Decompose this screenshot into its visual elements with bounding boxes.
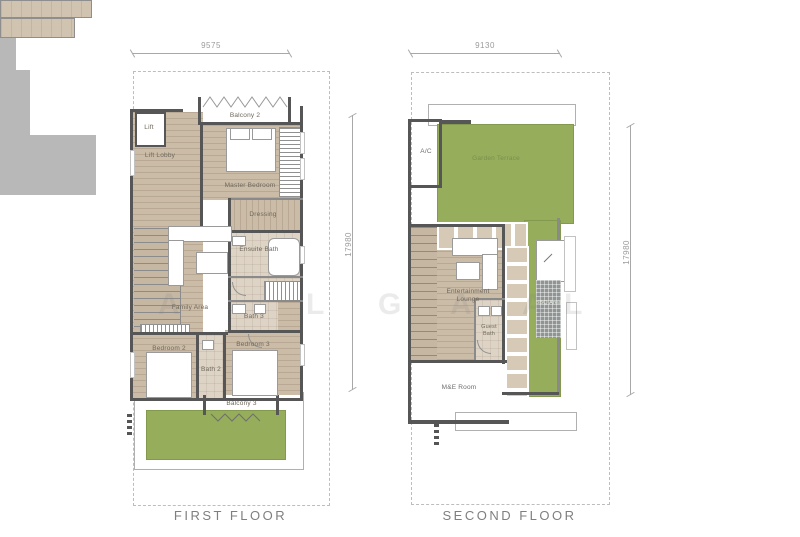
wall <box>196 335 199 398</box>
room-label-ensuite-bath: Ensuite Bath <box>238 246 280 254</box>
sink <box>478 306 490 316</box>
window <box>300 344 305 366</box>
toilet <box>491 306 502 316</box>
room-label-lift: Lift <box>136 124 162 132</box>
room-label-bedroom3: Bedroom 3 <box>228 341 278 349</box>
window <box>130 352 135 378</box>
window <box>300 246 305 264</box>
garden-terrace-floor <box>437 124 574 224</box>
wall <box>200 122 203 228</box>
watermark-letter: G <box>378 288 403 322</box>
first-floor-height-dimension: 17980 <box>344 232 353 257</box>
wall <box>228 198 231 332</box>
balcony3-floor <box>0 18 75 38</box>
room-label-dressing: Dressing <box>238 211 288 219</box>
bbq-mark-icon <box>542 252 554 264</box>
wall <box>408 420 509 424</box>
room-label-me-room: M&E Room <box>411 384 507 392</box>
wall <box>408 224 505 227</box>
wall <box>408 185 442 188</box>
room-label-ac: A/C <box>411 148 441 156</box>
room-label-master-bedroom: Master Bedroom <box>210 182 290 190</box>
lounge-table <box>456 262 480 280</box>
lawn-pergola-icon <box>210 413 266 423</box>
second-floor-stairs <box>411 227 437 362</box>
room-label-bedroom2: Bedroom 2 <box>144 345 194 353</box>
second-floor-height-dimension: 17980 <box>622 240 631 265</box>
first-floor-title: FIRST FLOOR <box>133 508 328 523</box>
wall <box>439 120 471 124</box>
second-floor-title: SECOND FLOOR <box>411 508 608 523</box>
wall <box>408 360 507 363</box>
wall <box>502 392 559 395</box>
room-label-balcony2: Balcony 2 <box>200 112 290 120</box>
window <box>130 150 135 176</box>
ac-room-floor <box>0 70 30 135</box>
exterior-ledge <box>564 236 576 292</box>
first-floor-width-dimension: 9575 <box>132 41 290 50</box>
watermark-letter: L <box>564 288 584 322</box>
room-label-lift-lobby: Lift Lobby <box>142 152 178 160</box>
first-floor-width-dimension-line <box>132 53 290 54</box>
lounge-sofa <box>482 254 498 290</box>
gate-post <box>127 414 132 438</box>
wall <box>408 119 411 424</box>
sofa <box>168 240 184 286</box>
floorplan-sheet: 9575 17980 <box>0 0 800 537</box>
wall <box>288 97 291 125</box>
bedroom2-bed <box>146 352 192 398</box>
pillow <box>252 128 272 140</box>
wall <box>228 330 303 333</box>
second-floor-width-dimension: 9130 <box>410 41 560 50</box>
watermark-letter: A <box>522 288 546 322</box>
wall <box>198 97 201 125</box>
coffee-table <box>196 252 228 274</box>
wall <box>130 332 228 335</box>
hall-closet <box>264 281 303 301</box>
window <box>300 158 305 180</box>
balcony2-floor <box>0 0 92 18</box>
pillow <box>230 128 250 140</box>
bathtub <box>268 238 300 276</box>
garden-pavers-column <box>505 246 529 398</box>
room-label-bath3: Bath 3 <box>236 313 272 321</box>
watermark-letter: A <box>450 288 474 322</box>
bedroom3-bed <box>232 350 278 396</box>
wall <box>223 333 226 398</box>
watermark-letter: L <box>306 288 326 322</box>
wall <box>228 276 303 278</box>
watermark-letter: A <box>158 288 182 322</box>
lift-shaft <box>0 38 16 70</box>
sink <box>232 236 246 246</box>
wall <box>408 119 442 122</box>
me-room-floor <box>0 135 96 195</box>
toilet <box>202 340 214 350</box>
wall <box>502 224 505 364</box>
room-label-bath2: Bath 2 <box>201 366 221 374</box>
window <box>300 132 305 154</box>
gate-post <box>434 424 439 448</box>
wall <box>228 230 303 233</box>
room-label-garden-terrace: Garden Terrace <box>470 155 522 163</box>
second-floor-width-dimension-line <box>410 53 560 54</box>
room-label-balcony3: Balcony 3 <box>205 400 278 408</box>
balcony2-pergola-icon <box>202 96 290 108</box>
wall <box>228 198 303 200</box>
wall <box>228 300 303 302</box>
room-label-guest-bath: Guest Bath <box>476 324 502 338</box>
